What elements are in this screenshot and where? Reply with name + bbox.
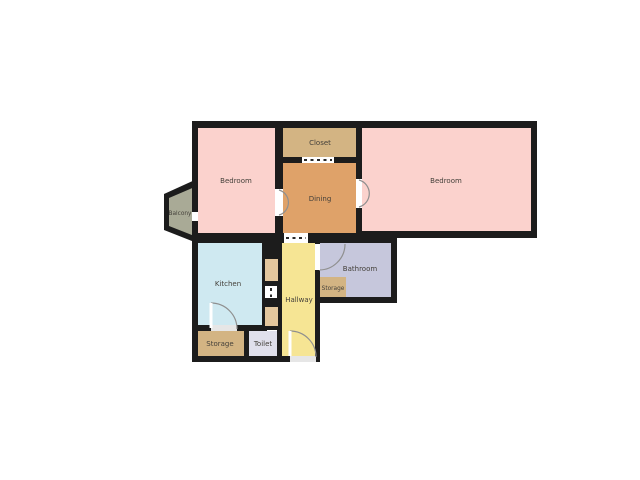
- wall-right: [531, 121, 537, 238]
- floorplan-canvas: Bedroom Closet Dining Bedroom Balcony Ki…: [0, 0, 640, 480]
- closet-label: Closet: [309, 139, 331, 147]
- kitchen-door-threshold: [211, 325, 237, 331]
- storage-label: Storage: [206, 340, 233, 348]
- wall-storage-toilet: [244, 330, 249, 356]
- bedroom-right-door-opening: [356, 179, 362, 208]
- toilet-label: Toilet: [253, 340, 273, 348]
- kitchen-label: Kitchen: [215, 280, 241, 288]
- wall-niche-lower: [265, 307, 278, 326]
- bedroom-left-label: Bedroom: [220, 177, 252, 185]
- hallway-door-threshold: [290, 356, 316, 362]
- wall-top: [192, 121, 537, 128]
- floorplan-image: Bedroom Closet Dining Bedroom Balcony Ki…: [0, 0, 640, 480]
- hallway-label: Hallway: [285, 296, 313, 304]
- bedroom-right-label: Bedroom: [430, 177, 462, 185]
- wall-toilet-hallway: [277, 330, 282, 356]
- balcony-door-opening: [192, 212, 198, 221]
- balcony-label: Balcony: [169, 211, 193, 217]
- bathroom-label: Bathroom: [343, 265, 378, 273]
- bedroom-left-door-opening: [275, 189, 283, 216]
- wall-bathroom-right: [391, 238, 397, 303]
- wall-bedroom-dining: [275, 121, 283, 243]
- wall-niche-upper: [265, 259, 278, 281]
- dining-label: Dining: [309, 195, 332, 203]
- wall-bathroom-bottom: [315, 297, 397, 303]
- bathroom-storage-label: Storage: [322, 286, 345, 292]
